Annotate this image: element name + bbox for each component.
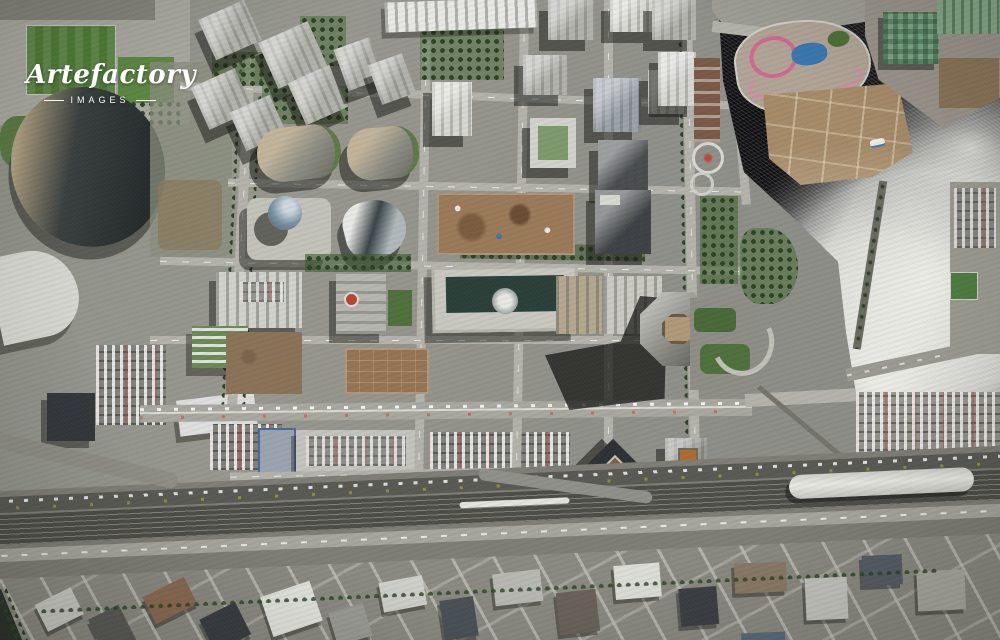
garden-roof-tower bbox=[254, 122, 343, 184]
waterfront-park bbox=[700, 196, 738, 284]
office-tower bbox=[593, 78, 641, 132]
watermark-subtitle: IMAGES bbox=[26, 95, 174, 105]
ferris-wheel bbox=[692, 142, 724, 174]
construction-site bbox=[345, 348, 429, 394]
hall-slab bbox=[556, 276, 602, 334]
sports-court bbox=[950, 272, 978, 300]
museum-building bbox=[336, 272, 386, 334]
office-tower bbox=[548, 0, 594, 40]
watermark-label: IMAGES bbox=[70, 95, 129, 105]
watermark: Artefactory IMAGES bbox=[26, 62, 174, 105]
watermark-brand: Artefactory bbox=[26, 62, 174, 88]
city-block bbox=[556, 589, 601, 635]
white-curved-building bbox=[0, 242, 86, 346]
city-block bbox=[741, 632, 786, 640]
round-plaza bbox=[690, 172, 714, 196]
city-block bbox=[805, 577, 849, 621]
park-green bbox=[827, 29, 851, 48]
stepped-tower bbox=[658, 52, 696, 106]
exhibition-hall bbox=[385, 0, 538, 33]
city-block bbox=[439, 596, 479, 640]
roof-detail bbox=[600, 195, 620, 205]
helipad-red bbox=[344, 292, 359, 307]
city-block bbox=[916, 569, 966, 611]
watermark-rule-left bbox=[44, 100, 64, 101]
office-tower bbox=[523, 55, 567, 95]
white-tower bbox=[432, 82, 472, 136]
watermark-rule-right bbox=[136, 100, 156, 101]
deck-cars bbox=[240, 282, 284, 302]
park-strip bbox=[420, 28, 504, 80]
green-roof-building bbox=[530, 118, 576, 168]
brick-plaza bbox=[939, 58, 999, 108]
rooftop-cars bbox=[306, 436, 406, 466]
dark-tower bbox=[598, 140, 648, 192]
dome-tower bbox=[268, 196, 302, 230]
city-block bbox=[199, 602, 251, 640]
brown-pavilion-row bbox=[694, 58, 720, 142]
green-checker-roof bbox=[883, 12, 939, 64]
garden-roof-tower bbox=[344, 123, 421, 182]
dirt-patch bbox=[158, 180, 222, 250]
retail-roof-parking bbox=[258, 428, 296, 476]
construction-site-large bbox=[437, 193, 575, 255]
dirt-lot bbox=[226, 332, 302, 394]
office-tower bbox=[652, 0, 696, 40]
mall-rotunda bbox=[492, 288, 518, 314]
aerial-photo: Artefactory IMAGES bbox=[0, 0, 1000, 640]
parking-lot bbox=[954, 188, 996, 248]
city-block bbox=[678, 586, 719, 627]
dark-strip bbox=[0, 0, 155, 20]
east-bank bbox=[950, 182, 1000, 354]
dark-warehouse bbox=[47, 393, 95, 441]
waterfront-park bbox=[740, 228, 798, 304]
city-block bbox=[260, 581, 323, 637]
roof-garden bbox=[538, 126, 568, 160]
mall-park-axis bbox=[305, 254, 411, 272]
green-striped-roof bbox=[937, 0, 999, 34]
city-block bbox=[328, 603, 372, 640]
court-green bbox=[388, 290, 412, 326]
office-tower bbox=[610, 0, 652, 32]
